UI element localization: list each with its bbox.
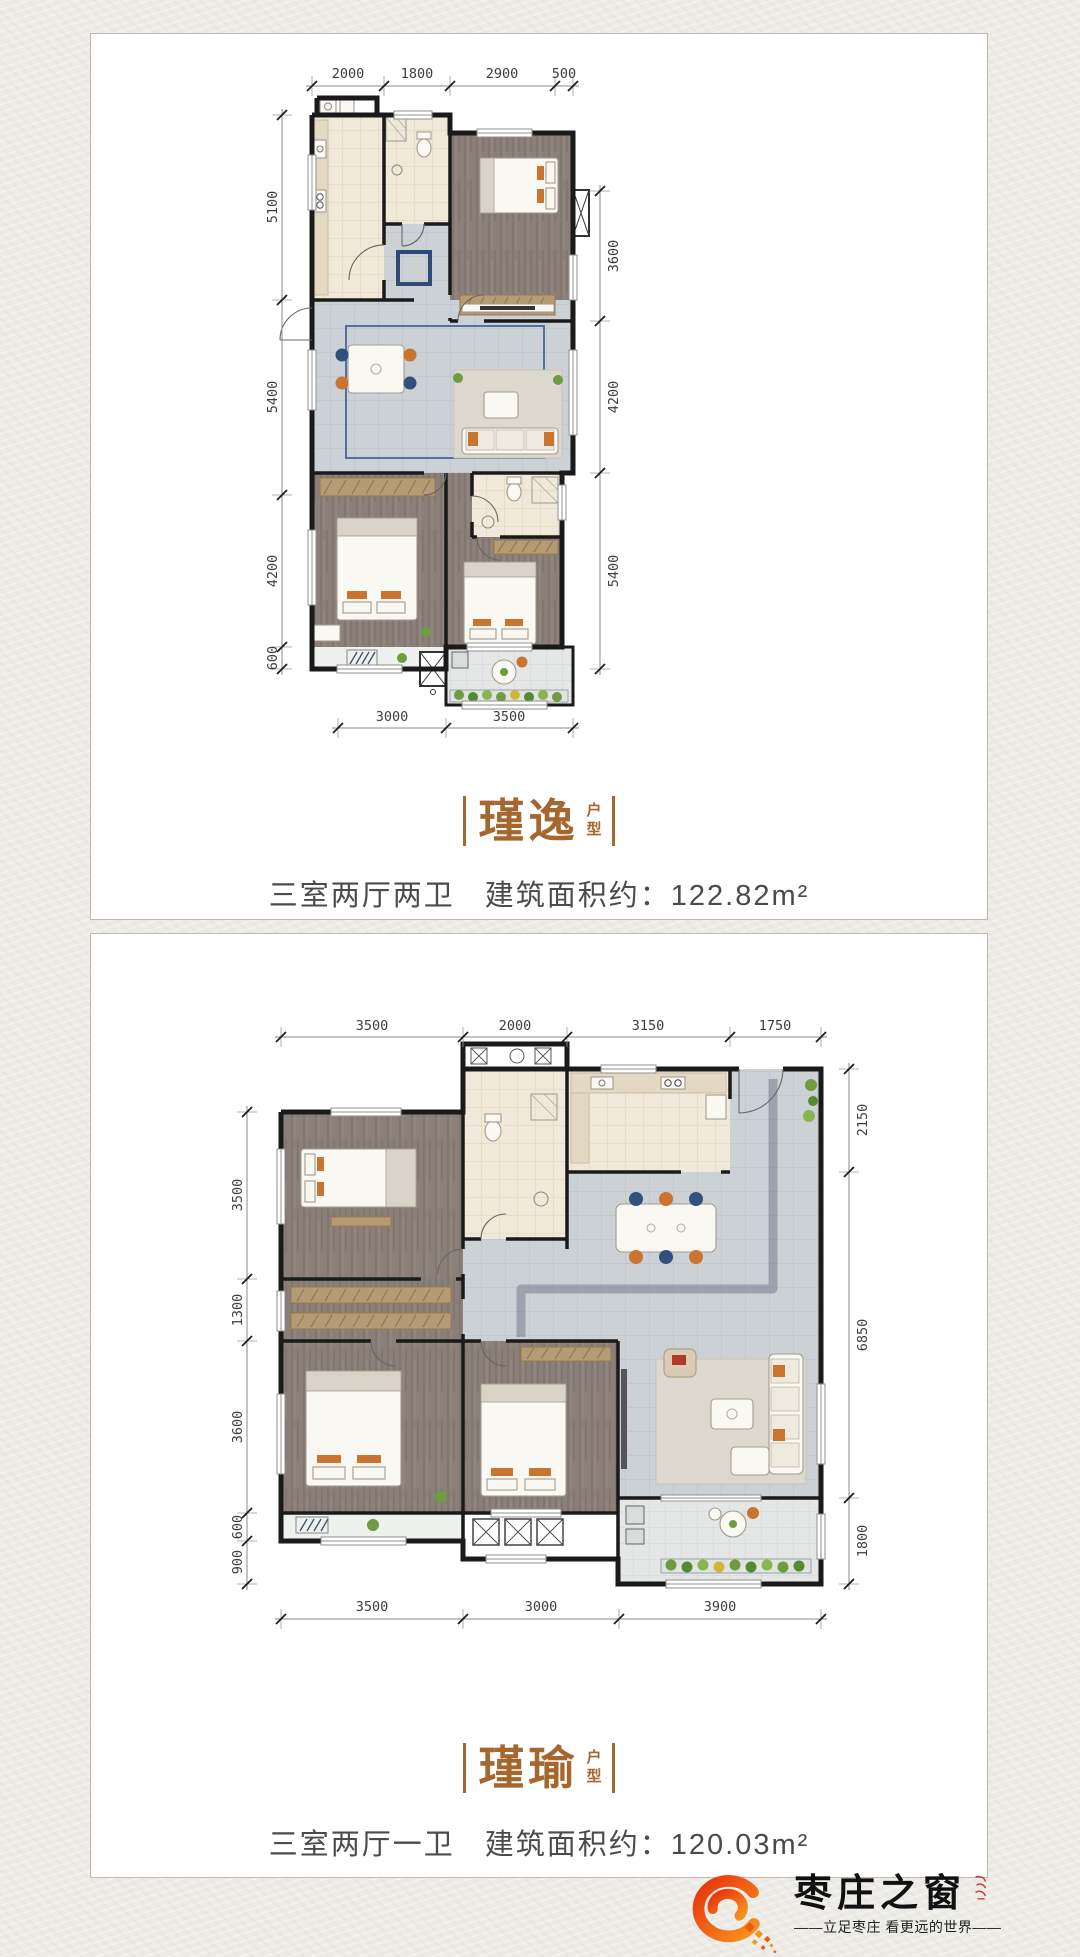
dim-label: 1300 [230,1294,246,1327]
window-icon [491,1509,561,1517]
dim-label: 3500 [230,1179,246,1212]
planter [450,690,568,702]
dim-label: 2150 [855,1104,871,1137]
dim-label: 3900 [704,1599,737,1615]
window-icon [817,1514,825,1559]
wash-basin [626,1506,644,1524]
plant-icon [421,627,431,637]
bed [337,518,417,620]
plant-icon [453,373,463,383]
brand-tagline: ——立足枣庄 看更远的世界—— [794,1917,1001,1937]
dim-label: 3600 [606,240,622,273]
dim-label: 600 [265,646,281,670]
window-icon [462,701,547,709]
balcony-chair [517,657,528,668]
corridor [446,473,472,537]
bed [306,1371,401,1486]
window-icon [467,643,532,651]
dim-label: 3000 [376,709,409,725]
washer-icon [320,100,336,113]
plan-desc-jinyi: 三室两厅两卫 建筑面积约：122.82m² [269,872,810,914]
dim-label: 2000 [499,1018,532,1034]
dim-label: 2000 [332,66,365,82]
wash-basin [452,652,468,668]
dim-label: 1800 [401,66,434,82]
dim-label: 5400 [265,381,281,414]
dim-label: 5100 [265,191,281,224]
bathroom-1 [384,115,450,224]
toilet-icon [417,139,431,157]
floor-plan-jinyu: 3500 2000 3150 1750 3500 1300 3600 600 9… [121,999,901,1689]
hallway [384,224,450,300]
brand-name: 枣庄之窗 [794,1872,966,1914]
logo-dots [745,1922,777,1953]
site-logo: 枣庄之窗 ——立足枣庄 看更远的世界—— [672,1872,1001,1956]
coffee-table [484,392,518,418]
dim-label: 4200 [606,381,622,414]
window-icon [321,1537,406,1545]
wardrobe [320,478,435,496]
window-icon [308,155,316,210]
plant-icon [553,375,563,385]
suffix-char: 型 [586,821,601,840]
suffix-char: 户 [586,802,601,821]
title-bar-right [612,1743,615,1793]
dim-label: 3150 [632,1018,665,1034]
window-icon [661,1495,761,1501]
wardrobe [494,540,558,554]
bench [331,1217,391,1226]
dim-label: 2900 [486,66,519,82]
bed [481,1384,566,1496]
window-icon [817,1384,825,1464]
shaft-icon [473,1519,563,1545]
plan-name: 瑾逸 [466,796,584,847]
toilet-icon [485,1121,501,1141]
dim-label: 3500 [356,1018,389,1034]
sink-icon [340,100,354,113]
logo-text: 枣庄之窗 ——立足枣庄 看更远的世界—— [794,1872,1001,1937]
dim-label: 3500 [493,709,526,725]
shaft-icon [420,652,446,695]
window-icon [277,1149,285,1224]
area-label: 建筑面积约：120.03m² [485,1821,810,1863]
plan-card-jinyi: 2000 1800 2900 500 5100 5400 4200 600 36… [90,33,988,920]
plan-suffix: 户 型 [586,802,601,840]
plan-card-jinyu: 3500 2000 3150 1750 3500 1300 3600 600 9… [90,933,988,1878]
tv-icon [480,306,535,310]
window-icon [277,1394,285,1474]
window-icon [569,255,577,300]
plant-icon [397,653,407,663]
dim-label: 3000 [525,1599,558,1615]
dining-table [616,1192,716,1264]
entry-door [280,308,312,340]
logo-e-mark-icon [672,1872,782,1956]
plan-title-jinyi: 瑾逸 户 型 [463,790,614,852]
floor-plan-jinyi: 2000 1800 2900 500 5100 5400 4200 600 36… [162,40,682,750]
plant-icon [367,1519,379,1531]
layout-label: 三室两厅两卫 [269,872,455,914]
dim-label: 5400 [606,555,622,588]
dim-label: 500 [552,66,576,82]
suffix-char: 户 [586,1749,601,1768]
bed [301,1149,416,1207]
dim-label: 3600 [230,1411,246,1444]
window-icon [331,1108,401,1116]
title-bar-right [612,796,615,846]
tv-wall [621,1369,627,1469]
dining-table [336,345,417,393]
plant-icon [805,1079,817,1091]
desk [314,625,340,641]
window-icon [308,350,316,410]
window-icon [666,1580,761,1588]
toilet-icon [507,483,521,501]
window-icon [558,485,566,520]
window-icon [394,111,432,119]
window-icon [601,1065,656,1073]
basin-icon [510,1049,524,1063]
suffix-char: 型 [586,1768,601,1787]
dim-label: 1800 [855,1525,871,1558]
plan-desc-jinyu: 三室两厅一卫 建筑面积约：120.03m² [269,1821,810,1863]
bed [464,562,536,644]
window-icon [486,1555,546,1563]
dim-label: 3500 [356,1599,389,1615]
area-label: 建筑面积约：122.82m² [485,872,810,914]
sofa [462,428,558,454]
window-icon [308,530,316,605]
window-icon [477,129,532,137]
window-icon [277,1291,285,1331]
window-icon [569,350,577,435]
plan-name: 瑾瑜 [466,1743,584,1794]
plan-title-jinyu: 瑾瑜 户 型 [463,1737,614,1799]
balcony-chair [747,1507,759,1519]
coffee-table [711,1399,753,1429]
dim-label: 1750 [759,1018,792,1034]
window-icon [337,665,402,673]
dim-label: 900 [230,1550,246,1574]
plan-suffix: 户 型 [586,1749,601,1787]
armchair [664,1349,696,1377]
plant-icon [435,1491,447,1503]
dim-label: 6850 [855,1319,871,1352]
bed [480,158,558,213]
dim-label: 4200 [265,555,281,588]
layout-label: 三室两厅一卫 [269,1821,455,1863]
fridge-icon [706,1095,726,1119]
seal-mark-icon [972,1874,990,1902]
dim-label: 600 [230,1515,246,1539]
